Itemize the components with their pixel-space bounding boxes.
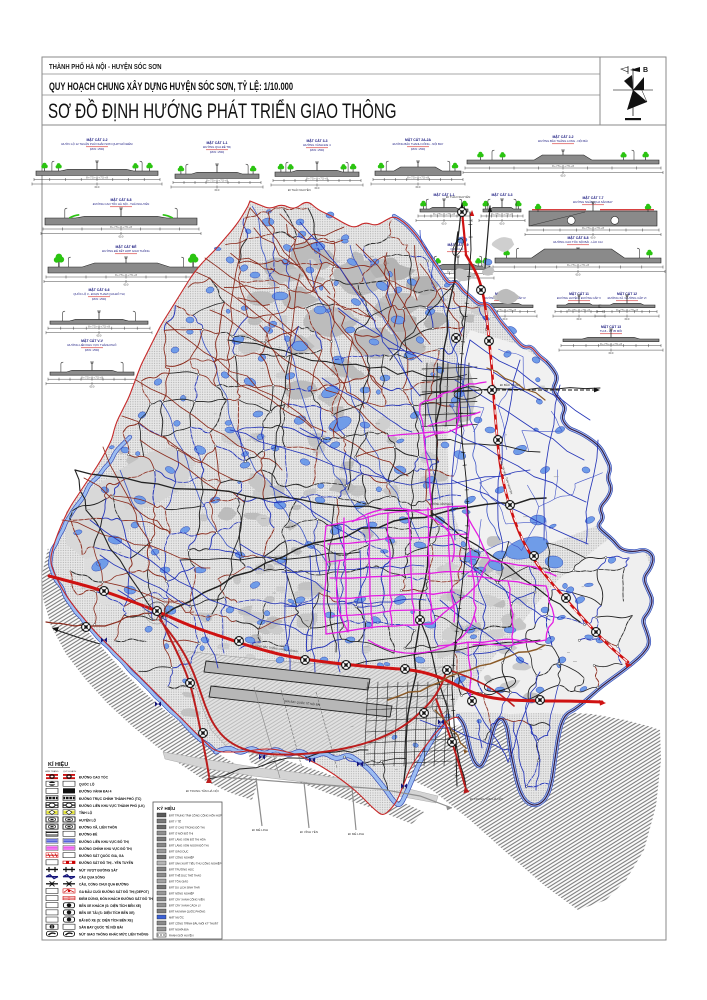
svg-text:8 + 7.5 + 8 + 7.5 + 8: 8 + 7.5 + 8 + 7.5 + 8 bbox=[568, 309, 590, 312]
svg-text:60.0: 60.0 bbox=[591, 237, 596, 240]
svg-text:NÚT GIAO THÔNG KHÁC MỨC LIÊN T: NÚT GIAO THÔNG KHÁC MỨC LIÊN THÔNG bbox=[79, 932, 149, 937]
svg-text:MẶT CẮT 8-8: MẶT CẮT 8-8 bbox=[110, 197, 131, 202]
svg-text:8 + 7.5 + 8 + 7.5 + 8: 8 + 7.5 + 8 + 7.5 + 8 bbox=[616, 309, 638, 312]
svg-text:ĐƯỜNG BẮC THANH CÔNG - NỘI BAY: ĐƯỜNG BẮC THANH CÔNG - NỘI BAY bbox=[393, 141, 444, 146]
svg-text:60.0: 60.0 bbox=[561, 175, 566, 178]
svg-text:MẶT CẮT 1-1: MẶT CẮT 1-1 bbox=[206, 140, 227, 145]
svg-text:MẶT CẮT V-V: MẶT CẮT V-V bbox=[81, 338, 103, 343]
svg-text:ĐƯỜNG VÀNH ĐAI 4: ĐƯỜNG VÀNH ĐAI 4 bbox=[303, 142, 331, 147]
svg-text:BẾN XE KHÁCH (S: DIỆN TÍCH BẾN: BẾN XE KHÁCH (S: DIỆN TÍCH BẾN XE) bbox=[79, 903, 141, 908]
svg-text:60.0: 60.0 bbox=[609, 352, 614, 355]
svg-text:ĐƯỜNG ĐÊ KẾT HỢP GIAO THÔNG: ĐƯỜNG ĐÊ KẾT HỢP GIAO THÔNG bbox=[102, 248, 149, 253]
svg-text:ĐƯỜNG ĐÊ: ĐƯỜNG ĐÊ bbox=[79, 832, 98, 837]
svg-text:60.0: 60.0 bbox=[416, 186, 421, 189]
svg-text:ĐƯỜNG LIÊN KHU VỰC THÀNH PHỐ: ĐƯỜNG LIÊN KHU VỰC THÀNH PHỐ bbox=[68, 342, 118, 347]
svg-text:60.0: 60.0 bbox=[119, 236, 124, 239]
svg-text:MẶT CẮT 2A-2A: MẶT CẮT 2A-2A bbox=[405, 137, 432, 142]
svg-text:MẶT CẮT 3-3: MẶT CẮT 3-3 bbox=[306, 138, 327, 143]
svg-text:8 + 7.5 + 8 + 7.5 + 8: 8 + 7.5 + 8 + 7.5 + 8 bbox=[306, 178, 328, 181]
svg-text:ĐƯỜNG LIÊN KHU VỰC ĐÔ THỊ: ĐƯỜNG LIÊN KHU VỰC ĐÔ THỊ bbox=[79, 839, 129, 844]
svg-text:ĐI VĨNH YÊN: ĐI VĨNH YÊN bbox=[300, 829, 318, 834]
svg-text:NÚT VƯỢT ĐƯỜNG SẮT: NÚT VƯỢT ĐƯỜNG SẮT bbox=[79, 867, 118, 872]
svg-text:8 + 7.5 + 8 + 7.5 + 8: 8 + 7.5 + 8 + 7.5 + 8 bbox=[206, 180, 228, 183]
svg-text:MẶT CẮT 6-6: MẶT CẮT 6-6 bbox=[88, 287, 109, 292]
svg-text:QUY HOẠCH CHUNG XÂY DỰNG HUYỆN: QUY HOẠCH CHUNG XÂY DỰNG HUYỆN SÓC SƠN, … bbox=[49, 80, 293, 93]
svg-text:MẶT CẮT 13: MẶT CẮT 13 bbox=[601, 324, 621, 329]
svg-text:8 + 7.5 + 8 + 7.5 + 8: 8 + 7.5 + 8 + 7.5 + 8 bbox=[115, 274, 137, 277]
svg-text:60.0: 60.0 bbox=[315, 187, 320, 190]
svg-text:QUỐC LỘ 3 - ĐOẠN THAM QUA ĐÔ T: QUỐC LỘ 3 - ĐOẠN THAM QUA ĐÔ THỊ bbox=[73, 291, 125, 296]
svg-text:60.0: 60.0 bbox=[576, 274, 581, 277]
svg-text:60.0: 60.0 bbox=[577, 318, 582, 321]
svg-text:8 + 7.5 + 8 + 7.5 + 8: 8 + 7.5 + 8 + 7.5 + 8 bbox=[81, 376, 103, 379]
svg-text:8 + 7.5 + 8 + 7.5 + 8: 8 + 7.5 + 8 + 7.5 + 8 bbox=[407, 177, 429, 180]
svg-text:8 + 7.5 + 8 + 7.5 + 8: 8 + 7.5 + 8 + 7.5 + 8 bbox=[600, 343, 622, 346]
svg-text:MẶT CẮT 3-3: MẶT CẮT 3-3 bbox=[491, 192, 512, 197]
svg-text:ĐƯỜNG BẮC THĂNG LONG - NỘI BÀI: ĐƯỜNG BẮC THĂNG LONG - NỘI BÀI bbox=[538, 138, 588, 143]
svg-text:MẶT CẮT 2-2: MẶT CẮT 2-2 bbox=[86, 137, 107, 142]
svg-text:ĐƯỜNG CAO TỐC: ĐƯỜNG CAO TỐC bbox=[79, 774, 109, 779]
svg-text:MẶT CẮT 7-7: MẶT CẮT 7-7 bbox=[582, 195, 603, 200]
svg-text:ĐIỂM DỪNG, ĐÓN KHÁCH ĐƯỜNG SẮT: ĐIỂM DỪNG, ĐÓN KHÁCH ĐƯỜNG SẮT ĐÔ THỊ bbox=[79, 896, 154, 901]
svg-text:60.0: 60.0 bbox=[95, 186, 100, 189]
svg-text:ĐƯỜNG SẮT ĐÔ THỊ - YÊN TUYẾN: ĐƯỜNG SẮT ĐÔ THỊ - YÊN TUYẾN bbox=[79, 860, 134, 865]
svg-text:60.0: 60.0 bbox=[215, 189, 220, 192]
svg-text:60.0: 60.0 bbox=[97, 335, 102, 338]
svg-text:GA ĐẦU CUỐI ĐƯỜNG SẮT ĐÔ THỊ (: GA ĐẦU CUỐI ĐƯỜNG SẮT ĐÔ THỊ (DEPOT) bbox=[79, 889, 149, 894]
svg-text:(MCN: 1/500): (MCN: 1/500) bbox=[92, 298, 107, 301]
svg-text:(MCN: 1/500): (MCN: 1/500) bbox=[85, 349, 100, 352]
svg-text:60.0: 60.0 bbox=[442, 223, 447, 226]
svg-text:BẾN XE TẢI (S: DIỆN TÍCH BẾN X: BẾN XE TẢI (S: DIỆN TÍCH BẾN XE) bbox=[79, 910, 135, 915]
svg-text:(MCN: 1/500): (MCN: 1/500) bbox=[411, 148, 426, 151]
svg-text:60.0: 60.0 bbox=[124, 284, 129, 287]
svg-text:SÂN BAY QUỐC TẾ NỘI BÀI: SÂN BAY QUỐC TẾ NỘI BÀI bbox=[79, 925, 123, 930]
svg-text:ĐƯỜNG CHÍNH KHU VỰC ĐÔ THỊ: ĐƯỜNG CHÍNH KHU VỰC ĐÔ THỊ bbox=[79, 846, 132, 851]
svg-text:(MCN: 1/500): (MCN: 1/500) bbox=[310, 149, 325, 152]
svg-text:ĐI THÁI NGUYÊN: ĐI THÁI NGUYÊN bbox=[288, 187, 311, 192]
svg-text:8 + 7.5 + 8 + 7.5 + 8: 8 + 7.5 + 8 + 7.5 + 8 bbox=[110, 226, 132, 229]
svg-text:8 + 7.5 + 8 + 7.5 + 8: 8 + 7.5 + 8 + 7.5 + 8 bbox=[494, 309, 516, 312]
svg-text:8 + 7.5 + 8 + 7.5 + 8: 8 + 7.5 + 8 + 7.5 + 8 bbox=[491, 213, 513, 216]
svg-text:ĐƯỜNG SẮT QUỐC GIA, GA: ĐƯỜNG SẮT QUỐC GIA, GA bbox=[79, 853, 124, 858]
svg-text:ĐƯỜNG LIÊN KHU VỰC THÀNH PHỐ (: ĐƯỜNG LIÊN KHU VỰC THÀNH PHỐ (LK) bbox=[79, 803, 145, 808]
svg-text:ĐƯỜNG QUA ĐÊ TRị: ĐƯỜNG QUA ĐÊ TRị bbox=[203, 144, 231, 149]
svg-text:8 + 7.5 + 8 + 7.5 + 8: 8 + 7.5 + 8 + 7.5 + 8 bbox=[88, 325, 110, 328]
svg-text:ĐƯỜNG TRỤC CHÍNH THÀNH PHỐ (TC: ĐƯỜNG TRỤC CHÍNH THÀNH PHỐ (TC) bbox=[79, 796, 141, 801]
svg-text:60.0: 60.0 bbox=[625, 318, 630, 321]
svg-text:60.0: 60.0 bbox=[503, 318, 508, 321]
svg-text:HUYỆN LỘ: HUYỆN LỘ bbox=[79, 817, 96, 822]
svg-text:(MCN: 1/500): (MCN: 1/500) bbox=[210, 151, 225, 154]
svg-text:ĐƯỜNG CAO TỐC NỘI BÀI - LÀO CA: ĐƯỜNG CAO TỐC NỘI BÀI - LÀO CAI bbox=[553, 239, 602, 244]
svg-text:B: B bbox=[643, 67, 648, 74]
svg-text:ĐƯỜNG CAO TỐC HÀ NỘI - THÁI NG: ĐƯỜNG CAO TỐC HÀ NỘI - THÁI NGUYÊN bbox=[93, 201, 149, 206]
svg-text:ĐƯỜNG XÃ, LIÊN THÔN: ĐƯỜNG XÃ, LIÊN THÔN bbox=[79, 824, 118, 829]
svg-text:ĐI THÁI NGUYÊN: ĐI THÁI NGUYÊN bbox=[446, 194, 470, 199]
svg-text:(MCN: 1/500): (MCN: 1/500) bbox=[90, 148, 105, 151]
svg-text:ĐI MÊ LINH: ĐI MÊ LINH bbox=[348, 831, 364, 836]
svg-text:BÃI ĐỖ XE (S: DIỆN TÍCH BẾN XE: BÃI ĐỖ XE (S: DIỆN TÍCH BẾN XE) bbox=[79, 917, 133, 922]
svg-text:MẶT CẮT ĐÊ: MẶT CẮT ĐÊ bbox=[116, 244, 138, 249]
svg-text:ĐƯỜNG VÀNH ĐAI 4: ĐƯỜNG VÀNH ĐAI 4 bbox=[430, 503, 454, 506]
svg-text:8 + 7.5 + 8 + 7.5 + 8: 8 + 7.5 + 8 + 7.5 + 8 bbox=[582, 227, 604, 230]
svg-text:SƠ ĐỒ ĐỊNH HƯỚNG PHÁT TRIỂN GI: SƠ ĐỒ ĐỊNH HƯỚNG PHÁT TRIỂN GIAO THÔNG bbox=[48, 98, 397, 122]
svg-text:ĐƯỜNG VÀNH ĐAI 4: ĐƯỜNG VÀNH ĐAI 4 bbox=[79, 789, 112, 794]
svg-text:60.0: 60.0 bbox=[500, 223, 505, 226]
svg-text:CẦU, CỐNG CHUI QUA ĐƯỜNG: CẦU, CỐNG CHUI QUA ĐƯỜNG bbox=[79, 882, 129, 887]
svg-text:ĐI TRUNG TÂM HÀ NỘI: ĐI TRUNG TÂM HÀ NỘI bbox=[470, 796, 503, 801]
svg-text:ĐI MÊ LINH: ĐI MÊ LINH bbox=[252, 827, 268, 832]
svg-text:MẶT CẮT 2-2: MẶT CẮT 2-2 bbox=[552, 134, 573, 139]
svg-text:60.0: 60.0 bbox=[90, 386, 95, 389]
svg-text:8 + 7.5 + 8 + 7.5 + 8: 8 + 7.5 + 8 + 7.5 + 8 bbox=[552, 165, 574, 168]
svg-text:TỈNH LỘ: TỈNH LỘ bbox=[79, 810, 93, 815]
svg-text:8 + 7.5 + 8 + 7.5 + 8: 8 + 7.5 + 8 + 7.5 + 8 bbox=[86, 177, 108, 180]
svg-text:ĐI TRUNG TÂM HÀ NỘI: ĐI TRUNG TÂM HÀ NỘI bbox=[186, 788, 219, 793]
svg-text:8 + 7.5 + 8 + 7.5 + 8: 8 + 7.5 + 8 + 7.5 + 8 bbox=[567, 264, 589, 267]
svg-text:MẶT CẮT 8-8: MẶT CẮT 8-8 bbox=[567, 235, 588, 240]
svg-text:8 + 7.5 + 8 + 7.5 + 8: 8 + 7.5 + 8 + 7.5 + 8 bbox=[433, 213, 455, 216]
svg-text:ĐƯỜC LỘ 12 THUẬN PHÚ NHÂN SƠN: ĐƯỜC LỘ 12 THUẬN PHÚ NHÂN SƠN QUốT ĐỐI Đ… bbox=[62, 141, 134, 146]
svg-text:QUỐC LỘ: QUỐC LỘ bbox=[79, 782, 95, 787]
svg-text:CẦU QUA SÔNG: CẦU QUA SÔNG bbox=[79, 875, 105, 880]
